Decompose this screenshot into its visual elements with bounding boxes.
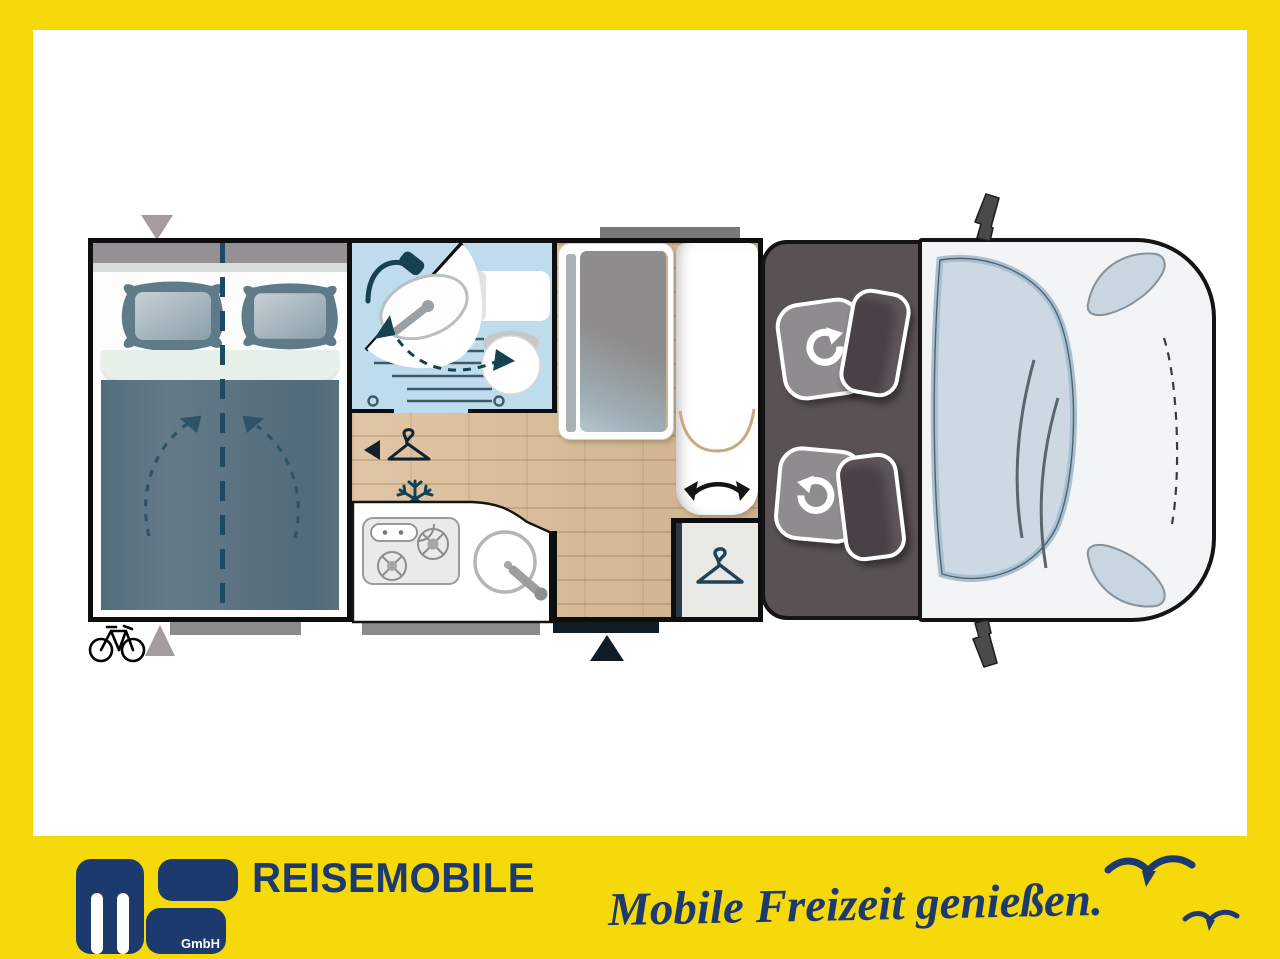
- bed-access-arrows: [103, 408, 339, 548]
- passenger-seat-backrest: [834, 451, 908, 564]
- vehicle-front-drawing: [918, 238, 1216, 622]
- gull-icon-small: [1182, 908, 1240, 934]
- rear-access-marker-bottom: [145, 625, 175, 656]
- wardrobe-hanger-icon: [696, 547, 744, 591]
- wall-bath-bottom-right: [468, 409, 557, 413]
- advert-canvas: GmbH REISEMOBILE Mobile Freizeit genieße…: [0, 0, 1280, 959]
- hanger-icon: [386, 428, 432, 466]
- bench-drawing: [676, 243, 758, 515]
- wall-kitchen-right: [549, 531, 557, 622]
- headlight-top: [1088, 253, 1165, 315]
- gull-icon-large: [1104, 853, 1196, 891]
- table-top: [580, 251, 668, 432]
- headlight-bottom: [1088, 545, 1165, 607]
- toilet: [472, 271, 550, 394]
- frame-left: [0, 0, 33, 959]
- wardrobe-strip: [676, 523, 682, 617]
- stove: [363, 518, 459, 584]
- entry-door-marker: [590, 635, 624, 661]
- dinette-table: [558, 243, 674, 440]
- hood-line: [1164, 338, 1177, 524]
- pillow-left: [117, 280, 229, 352]
- hall-hanger-pointer: [364, 440, 380, 460]
- brand-wordmark: REISEMOBILE: [252, 854, 535, 902]
- logo-gmbh: GmbH: [181, 936, 220, 951]
- table-side-rail: [564, 252, 578, 434]
- pillow-right: [237, 280, 343, 352]
- wall-bath-bottom-left: [352, 409, 394, 413]
- rear-access-marker-top: [141, 215, 173, 240]
- floorplan: [0, 0, 1280, 830]
- bench-swivel-arrow: [684, 481, 750, 501]
- brand-tagline: Mobile Freizeit genießen.: [607, 873, 1103, 937]
- mirror-top: [960, 193, 1004, 243]
- washroom-drawing: [352, 243, 557, 413]
- frame-right: [1247, 0, 1280, 959]
- brand-band: GmbH REISEMOBILE Mobile Freizeit genieße…: [0, 836, 1280, 959]
- cab: [761, 240, 922, 620]
- window-bar-bed: [170, 622, 301, 635]
- wall-bath-right: [552, 243, 557, 413]
- windshield: [934, 258, 1073, 578]
- kitchen-block: [352, 498, 558, 628]
- mirror-bottom: [958, 618, 1002, 668]
- washroom: [352, 243, 557, 413]
- ms-logo: GmbH: [76, 859, 238, 954]
- swivel-lounge-seat: [676, 243, 758, 515]
- frame-top: [0, 0, 1280, 30]
- wardrobe: [676, 523, 758, 617]
- bed-area: [93, 243, 347, 617]
